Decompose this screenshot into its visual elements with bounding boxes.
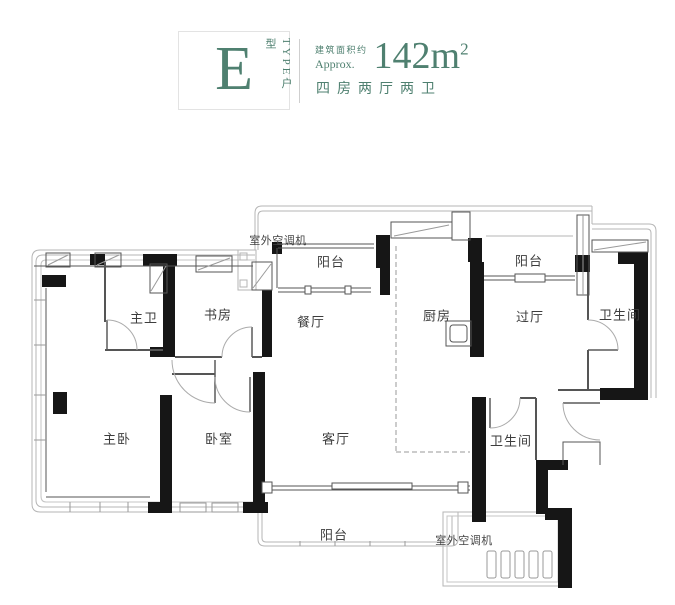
room-label-hall: 过厅 [516, 307, 544, 326]
room-label-bath-bottom: 卫生间 [490, 431, 532, 450]
room-label-study: 书房 [204, 305, 232, 324]
ac-unit-bottom-box [443, 512, 562, 586]
ac-unit-top-platform [238, 250, 256, 290]
room-label-kitchen: 厨房 [423, 306, 451, 325]
floorplan-page: E TYPE户型 建筑面积约 Approx. 142m2 四房两厅两卫 [0, 0, 675, 605]
room-label-balcony-bottom: 阳台 [320, 525, 348, 544]
room-label-dining: 餐厅 [297, 312, 325, 331]
room-label-living: 客厅 [322, 429, 350, 448]
kitchen-dashed-boundary [396, 246, 471, 452]
room-label-ac-top: 室外空调机 [249, 232, 307, 248]
room-label-master-bath: 主卫 [130, 308, 158, 327]
room-label-balcony-top-left: 阳台 [317, 252, 345, 271]
room-label-bedroom: 卧室 [205, 429, 233, 448]
room-label-balcony-top-right: 阳台 [515, 251, 543, 270]
door-swings [107, 320, 618, 440]
room-label-bath-top-right: 卫生间 [599, 305, 641, 324]
floorplan-drawing [0, 0, 675, 605]
room-label-ac-bottom: 室外空调机 [435, 532, 493, 548]
room-label-master-bedroom: 主卧 [103, 429, 131, 448]
